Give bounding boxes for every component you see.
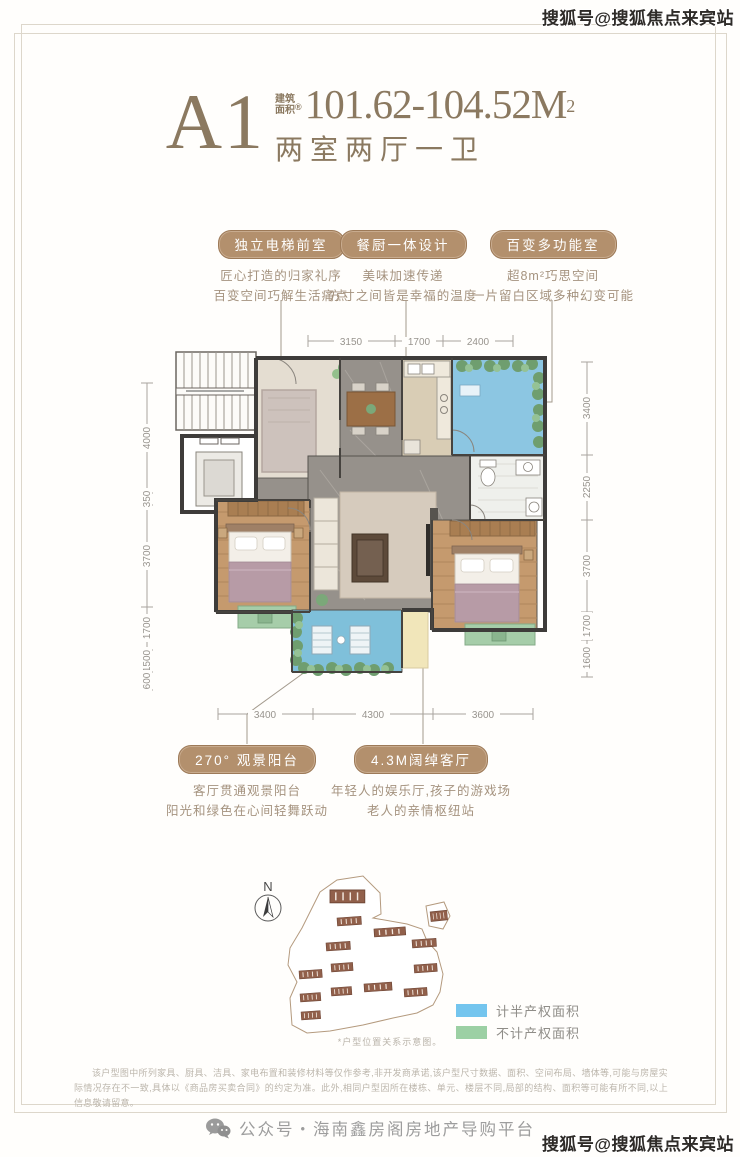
toilet [481,468,495,486]
dim-right-4: 1600 [582,646,593,669]
site-plan: N [255,876,450,1033]
washer [526,498,542,516]
feature-multi-line1: 超8m²巧思空间 [507,269,599,283]
title-block: A1 建筑® 面积 101.62-104.52M2 两室两厅一卫 [0,82,740,168]
stairwell [176,352,256,430]
disclaimer-text: 该户型图中所列家具、厨具、洁具、家电布置和装修材料等仅作参考,非开发商承诺,该户… [74,1066,668,1111]
poster-page: 搜狐号@搜狐焦点来宾站 搜狐号@搜狐焦点来宾站 A1 建筑® 面积 101.62… [0,0,740,1157]
feature-kitchen-line2: 方寸之间皆是幸福的温度 [329,289,478,303]
registered-mark: ® [295,102,302,112]
area-prefix-bottom: 面积 [275,105,295,116]
feature-tag-balcony: 270° 观景阳台 [178,745,316,774]
watermark-top: 搜狐号@搜狐焦点来宾站 [542,4,734,29]
floor-plan-canvas: 3150 1700 2400 3400 4300 3600 4000 350 3… [0,0,740,1157]
room-bedroom-left [216,500,310,612]
compass: N [255,879,281,921]
dim-bottom-1: 4300 [362,710,385,721]
room-bathroom [470,456,545,520]
dim-right-0: 3400 [582,396,593,419]
legend-label-half: 计半产权面积 [496,1001,580,1020]
feature-tag-multi: 百变多功能室 [490,230,617,259]
legend-item-half: 计半产权面积 [456,1001,580,1020]
feature-balcony-line1: 客厅贯通观景阳台 [193,784,301,798]
area-prefix-top: 建筑 [275,94,295,105]
dim-left-0: 4000 [142,426,153,449]
feature-multi-room: 百变多功能室 超8m²巧思空间 一片留白区域多种幻变可能 [458,230,648,306]
dim-bottom-0: 3400 [254,710,277,721]
dim-left-1: 350 [142,490,153,507]
green-strip-left [238,606,296,628]
room-multifunction [452,358,545,455]
area-value: 101.62-104.52M2 [305,82,575,126]
dim-bottom-2: 3600 [472,710,495,721]
dim-left-5: 600 [142,672,153,689]
legend-swatch-blue [456,1004,487,1017]
feature-multi-line2: 一片留白区域多种幻变可能 [472,289,634,303]
compass-n-label: N [263,879,272,894]
tv [426,524,430,576]
watermark-bottom: 搜狐号@搜狐焦点来宾站 [542,1130,734,1155]
feature-kitchen-line1: 美味加速传递 [362,269,443,283]
area-number: 101.62-104.52M [305,81,567,127]
dim-top-0: 3150 [340,337,363,348]
plan-code: A1 [166,82,265,162]
dim-left-4: 1500 [142,649,153,672]
area-prefix: 建筑® 面积 [275,94,302,116]
layout-desc: 两室两厅一卫 [275,128,574,168]
room-balcony [290,610,402,676]
feature-living-line1: 年轻人的娱乐厅,孩子的游戏场 [331,784,511,798]
feature-tag-kitchen: 餐厨一体设计 [340,230,467,259]
dim-left-2: 3700 [142,544,153,567]
room-bedroom-right [432,520,537,630]
feature-tag-living: 4.3M阔绰客厅 [354,745,488,774]
dim-left-3: 1700 [142,616,153,639]
dim-top-2: 2400 [467,337,490,348]
room-kitchen [402,358,452,456]
wechat-icon [205,1117,231,1139]
yellow-strip [402,610,428,668]
dim-top-1: 1700 [408,337,431,348]
footer-channel: 公众号・海南鑫房阁房地产导购平台 [239,1116,535,1140]
legend-label-none: 不计产权面积 [496,1023,580,1042]
feature-living-room: 4.3M阔绰客厅 年轻人的娱乐厅,孩子的游戏场 老人的亲情枢纽站 [308,745,534,821]
area-exponent: 2 [566,96,574,116]
dim-right-2: 3700 [582,554,593,577]
floor-plan [176,352,545,676]
feature-balcony-line2: 阳光和绿色在心间轻舞跃动 [166,804,328,818]
feature-living-line2: 老人的亲情枢纽站 [367,804,475,818]
green-strip-right [465,624,535,645]
dim-right-3: 1700 [582,614,593,637]
dim-right-1: 2250 [582,475,593,498]
site-plan-caption: *户型位置关系示意图。 [300,1035,480,1048]
